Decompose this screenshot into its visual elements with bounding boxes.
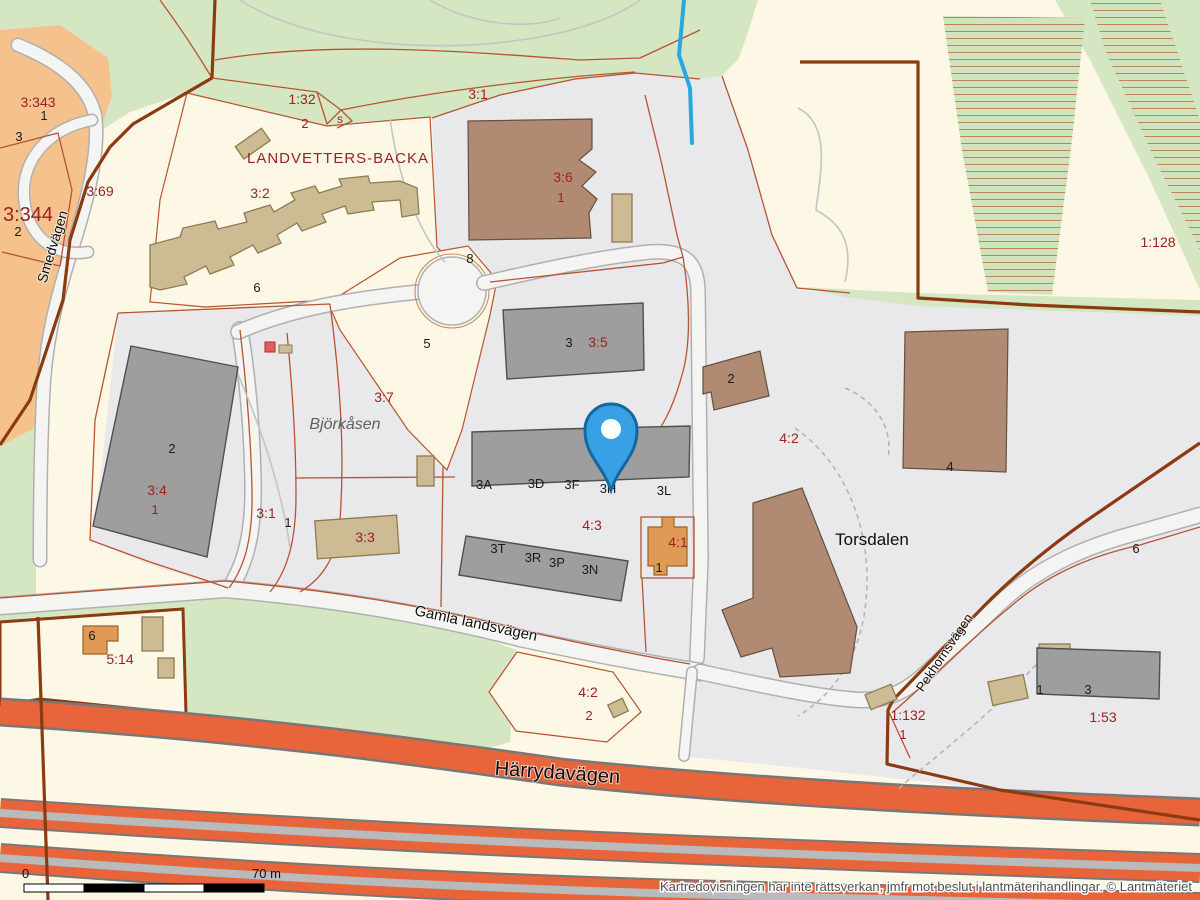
scale-segment (84, 884, 144, 892)
map-label: 1 (284, 515, 291, 530)
map-label: s (337, 112, 343, 126)
map-label: 4:2 (779, 430, 799, 446)
map-label: 2 (14, 224, 21, 239)
map-label: 2 (585, 708, 592, 723)
map-label: 1 (655, 560, 662, 575)
map-label: 3:69 (86, 183, 113, 199)
building-1-53 (1037, 648, 1160, 699)
map-label: 6 (88, 628, 95, 643)
map-canvas[interactable]: 3:343133:34423:69Smedvägen1:322s3:1LANDV… (0, 0, 1200, 900)
map-label: 3:6 (553, 169, 573, 185)
map-label: Torsdalen (835, 530, 909, 549)
scale-end-label: 70 m (252, 866, 281, 881)
map-label: 3:344 (3, 204, 53, 226)
building-4 (903, 329, 1008, 472)
building-3-6 (468, 119, 597, 240)
map-label: 3:343 (20, 94, 55, 110)
map-label: 3A (476, 477, 492, 492)
map-label: 3T (490, 541, 505, 556)
scale-segment (204, 884, 264, 892)
map-label: 3F (564, 477, 579, 492)
map-viewport[interactable]: 3:343133:34423:69Smedvägen1:322s3:1LANDV… (0, 0, 1200, 900)
scale-start-label: 0 (22, 866, 29, 881)
copyright-disclaimer: Kartredovisningen har inte rättsverkan, … (660, 879, 1192, 894)
map-label: 2 (727, 371, 734, 386)
road-turning-circle (415, 254, 489, 328)
map-label: 1:128 (1140, 234, 1175, 250)
map-label: 3:4 (147, 482, 167, 498)
building-outbuilding (612, 194, 632, 242)
map-label: 1:32 (288, 91, 315, 107)
map-label: 2 (301, 116, 308, 131)
map-label: 3 (565, 335, 572, 350)
map-label: 4:2 (578, 684, 598, 700)
pin-hole (601, 419, 621, 439)
map-label: 3:3 (355, 529, 375, 545)
map-label: 4:1 (668, 534, 688, 550)
building-rowhouse-3a-3l (472, 426, 690, 486)
map-label: 3:2 (250, 185, 270, 201)
map-label: 1 (151, 502, 158, 517)
map-label: LANDVETTERS-BACKA (247, 150, 429, 167)
symbol-tan-square (279, 345, 292, 353)
scale-segment (24, 884, 84, 892)
map-label: 3:1 (256, 505, 276, 521)
building-outbuilding (158, 658, 174, 678)
map-label: 1:53 (1089, 709, 1116, 725)
map-label: 4 (946, 459, 953, 474)
map-label: 3L (657, 483, 671, 498)
map-label: 4:3 (582, 517, 602, 533)
map-label: 3:7 (374, 389, 394, 405)
building-outbuilding (142, 617, 163, 651)
map-label: 3:1 (468, 86, 488, 102)
map-label: 1 (40, 108, 47, 123)
map-label: 8 (466, 251, 473, 266)
map-label: 6 (253, 280, 260, 295)
map-label: Björkåsen (309, 415, 380, 433)
map-label: 5:14 (106, 651, 133, 667)
map-label: 6 (1132, 541, 1139, 556)
scale-segment (144, 884, 204, 892)
map-label: 3P (549, 555, 565, 570)
map-label: 3D (528, 476, 545, 491)
building-outbuilding (417, 456, 434, 486)
map-label: 1:132 (890, 707, 925, 723)
map-label: 3R (525, 550, 542, 565)
map-label: 3 (1084, 682, 1091, 697)
map-label: 1 (1036, 682, 1043, 697)
symbol-red-square (265, 342, 275, 352)
map-label: 3:5 (588, 334, 608, 350)
map-label: 1 (557, 190, 564, 205)
map-label: 5 (423, 336, 430, 351)
map-label: 3 (15, 129, 22, 144)
map-label: 2 (168, 441, 175, 456)
map-label: 1 (899, 727, 906, 742)
map-label: 3N (582, 562, 599, 577)
building-3-5 (503, 303, 644, 379)
